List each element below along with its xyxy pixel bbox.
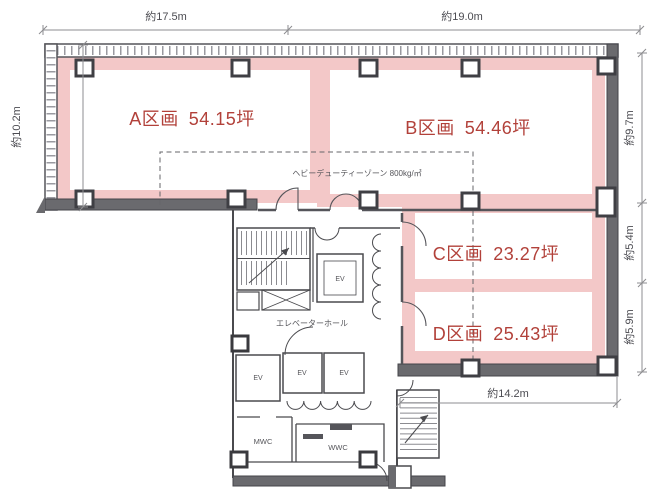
section-a-label: A区画54.15坪 — [129, 109, 255, 129]
mwc-label: MWC — [254, 437, 273, 446]
ev-1-label: EV — [253, 375, 263, 382]
core-pillar-left — [231, 452, 247, 467]
section-c-label: C区画23.27坪 — [433, 244, 560, 264]
ev-upper-label: EV — [335, 276, 345, 283]
wwc-label: WWC — [328, 443, 348, 452]
ev-3-label: EV — [339, 370, 349, 377]
hall-door-arc — [285, 327, 313, 355]
dim-right-lower-label: 約5.9m — [622, 309, 636, 344]
bifold-doors — [373, 234, 382, 319]
pillar — [597, 188, 615, 216]
dim-top-left-label: 約17.5m — [145, 9, 187, 23]
floor-plan-page: 約17.5m 約19.0m 約10.2m 約9.7m 約5.4m 約5.9m 約… — [0, 0, 659, 494]
dim-top-right-label: 約19.0m — [441, 9, 483, 23]
dim-right-middle-label: 約5.4m — [622, 225, 636, 260]
dim-line-right — [637, 53, 647, 372]
core-bottom-wall — [233, 476, 445, 486]
core-small-room — [237, 292, 259, 310]
dim-bottom-label: 約14.2m — [487, 386, 529, 400]
pillar — [462, 360, 479, 376]
dim-right-upper-label: 約9.7m — [622, 110, 636, 145]
pillar — [228, 191, 245, 207]
elevator-hall-label: エレベーターホール — [276, 319, 348, 328]
pillar — [232, 60, 249, 76]
core-entry-double-door — [315, 228, 339, 240]
heavy-duty-zone-label: ヘビーデューティーゾーン 800kg/㎡ — [292, 168, 421, 178]
pillar — [76, 191, 93, 207]
hall-pillar — [232, 336, 248, 351]
floor-plan-canvas: 約17.5m 約19.0m 約10.2m 約9.7m 約5.4m 約5.9m 約… — [0, 0, 659, 494]
ev-2-label: EV — [297, 370, 307, 377]
wwc-fixture-2 — [330, 424, 352, 430]
exterior-stair — [389, 380, 439, 488]
dim-left-label: 約10.2m — [9, 106, 23, 148]
pillar — [598, 58, 615, 74]
lower-landing-wall — [389, 466, 396, 488]
dimension-lines — [39, 25, 647, 408]
section-b-highlight — [324, 64, 599, 201]
pillar — [598, 357, 616, 375]
pillar — [360, 192, 377, 208]
dim-line-top — [43, 25, 640, 35]
pillar — [360, 60, 377, 76]
pillar — [76, 60, 93, 76]
section-a-highlight — [64, 64, 317, 197]
section-b-label: B区画54.46坪 — [405, 118, 531, 138]
section-d-highlight — [409, 286, 599, 358]
pillar — [462, 60, 479, 76]
core-pillar-right — [360, 452, 376, 467]
section-d-label: D区画25.43坪 — [433, 324, 560, 344]
wwc-fixture-1 — [303, 434, 323, 439]
core-shaft-cross — [262, 290, 310, 310]
pillar — [462, 193, 479, 209]
ev-bank-door-arcs — [287, 401, 371, 409]
corner-chamfer — [36, 196, 45, 213]
d-bottom-wall — [398, 364, 618, 376]
